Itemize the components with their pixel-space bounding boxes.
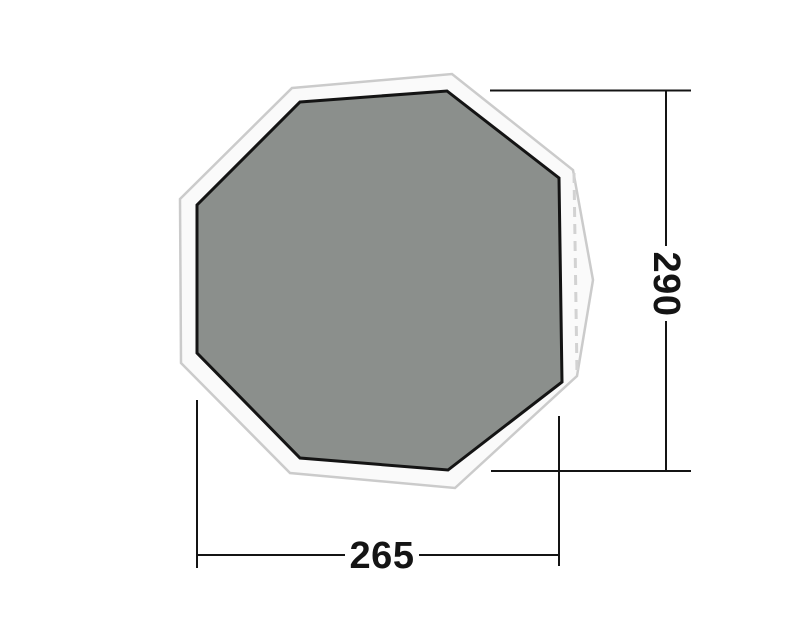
diagram-canvas: 265 290 [0, 0, 800, 624]
height-dimension-label: 290 [647, 252, 685, 317]
width-dimension-label: 265 [350, 537, 415, 575]
